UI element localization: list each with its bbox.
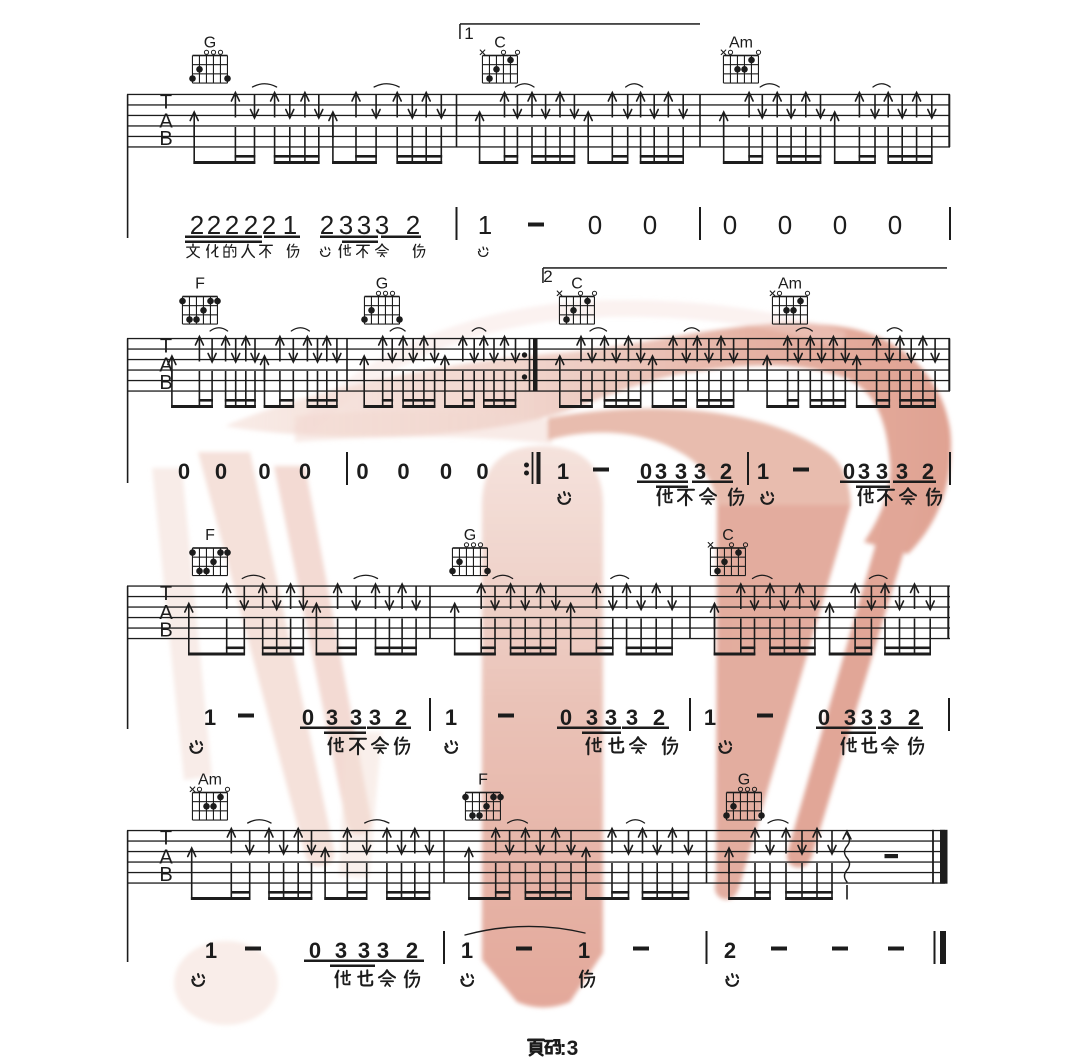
svg-text:1: 1 (478, 210, 492, 240)
svg-text:C: C (494, 35, 506, 52)
svg-text:G: G (376, 276, 388, 293)
svg-text:0: 0 (440, 459, 452, 484)
svg-text:2: 2 (395, 705, 407, 730)
svg-text:0: 0 (302, 705, 314, 730)
svg-text:1: 1 (557, 459, 569, 484)
svg-text:3: 3 (350, 705, 362, 730)
svg-text:G: G (738, 772, 750, 789)
svg-text:3: 3 (858, 459, 870, 484)
svg-text:0: 0 (356, 459, 368, 484)
svg-text:1: 1 (204, 705, 216, 730)
svg-text:3: 3 (358, 938, 370, 963)
svg-text:3: 3 (880, 705, 892, 730)
svg-text:F: F (195, 276, 205, 293)
svg-text:3: 3 (844, 705, 856, 730)
svg-text:0: 0 (560, 705, 572, 730)
svg-text:2: 2 (922, 459, 934, 484)
svg-text:Am: Am (198, 772, 222, 789)
svg-text:B: B (159, 620, 172, 642)
svg-text:1: 1 (464, 24, 473, 43)
svg-text:Am: Am (729, 35, 753, 52)
svg-text:0: 0 (778, 210, 792, 240)
svg-text:0: 0 (309, 938, 321, 963)
svg-text:C: C (722, 527, 734, 544)
svg-text:2: 2 (406, 938, 418, 963)
svg-text:0: 0 (588, 210, 602, 240)
svg-text:3: 3 (605, 705, 617, 730)
svg-text:F: F (478, 772, 488, 789)
svg-text:3: 3 (626, 705, 638, 730)
svg-text:C: C (571, 276, 583, 293)
svg-text:3: 3 (335, 938, 347, 963)
svg-text:3: 3 (675, 459, 687, 484)
svg-text:2: 2 (543, 267, 552, 286)
svg-text:3: 3 (694, 459, 706, 484)
svg-text:B: B (159, 864, 172, 886)
svg-text:B: B (159, 128, 172, 150)
svg-text:G: G (464, 527, 476, 544)
svg-text::3: :3 (560, 1037, 579, 1060)
svg-text:0: 0 (178, 459, 190, 484)
svg-text:3: 3 (861, 705, 873, 730)
svg-text:2: 2 (908, 705, 920, 730)
svg-text:2: 2 (653, 705, 665, 730)
svg-text:0: 0 (258, 459, 270, 484)
svg-text:2: 2 (724, 938, 736, 963)
svg-text:0: 0 (643, 210, 657, 240)
svg-text:0: 0 (833, 210, 847, 240)
svg-text:3: 3 (876, 459, 888, 484)
svg-text:3: 3 (377, 938, 389, 963)
svg-text:1: 1 (205, 938, 217, 963)
svg-text:B: B (159, 372, 172, 394)
svg-text:3: 3 (896, 459, 908, 484)
svg-text:F: F (205, 527, 215, 544)
svg-text:2: 2 (720, 459, 732, 484)
svg-text:3: 3 (586, 705, 598, 730)
svg-text:0: 0 (843, 459, 855, 484)
svg-text:0: 0 (476, 459, 488, 484)
svg-text:3: 3 (369, 705, 381, 730)
svg-text:0: 0 (397, 459, 409, 484)
svg-text:1: 1 (757, 459, 769, 484)
svg-text:1: 1 (445, 705, 457, 730)
svg-text:1: 1 (704, 705, 716, 730)
svg-text:G: G (204, 35, 216, 52)
svg-text:0: 0 (299, 459, 311, 484)
svg-text:3: 3 (326, 705, 338, 730)
svg-text:0: 0 (723, 210, 737, 240)
svg-text:0: 0 (888, 210, 902, 240)
svg-text:0: 0 (640, 459, 652, 484)
svg-text:0: 0 (818, 705, 830, 730)
svg-text:Am: Am (778, 276, 802, 293)
svg-text:0: 0 (215, 459, 227, 484)
svg-text:1: 1 (578, 938, 590, 963)
svg-text:3: 3 (655, 459, 667, 484)
svg-text:1: 1 (461, 938, 473, 963)
